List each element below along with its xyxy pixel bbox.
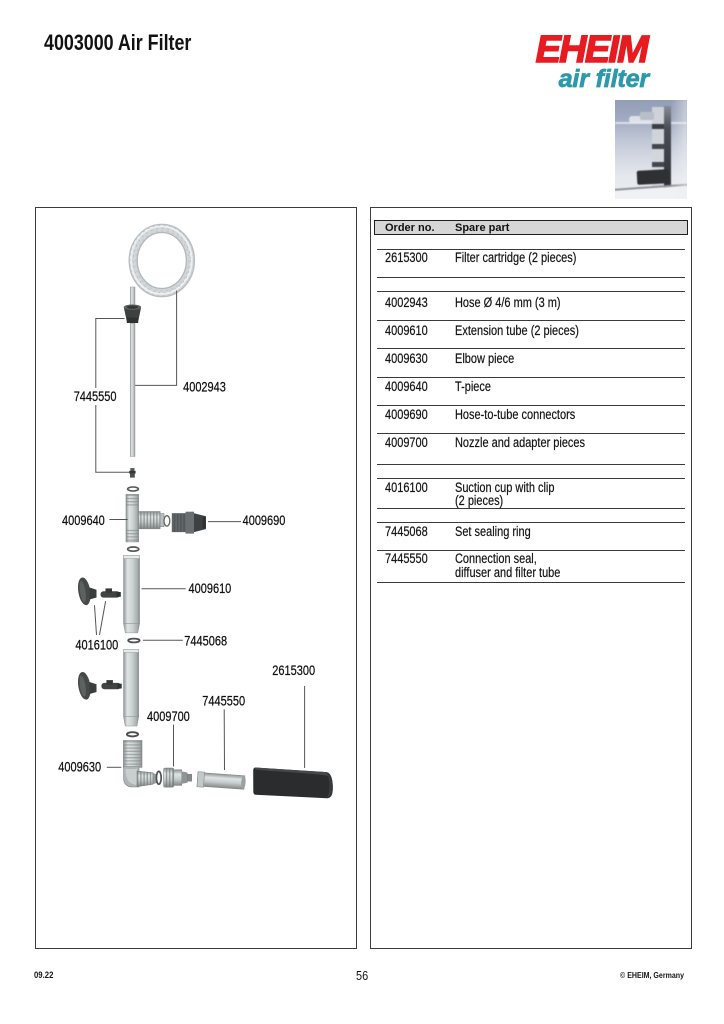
svg-text:4009630: 4009630 [58,760,101,775]
svg-text:7445550: 7445550 [202,694,245,709]
svg-text:7445068: 7445068 [184,634,227,649]
svg-text:4009610: 4009610 [189,581,232,596]
svg-text:2615300: 2615300 [272,663,315,678]
svg-text:4016100: 4016100 [75,638,118,653]
svg-text:4002943: 4002943 [183,380,226,395]
svg-text:4009690: 4009690 [243,513,286,528]
svg-text:4009640: 4009640 [62,513,105,528]
svg-text:7445550: 7445550 [74,389,117,404]
svg-text:4009700: 4009700 [147,709,190,724]
